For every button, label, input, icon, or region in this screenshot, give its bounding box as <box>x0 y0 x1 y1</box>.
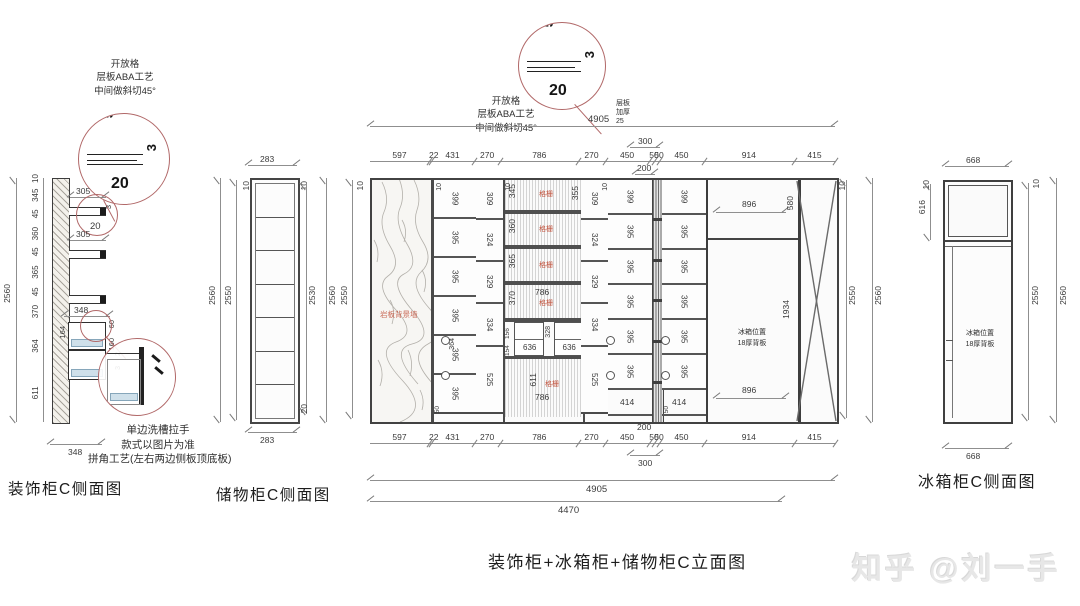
fridge-top-cell: 896 580 <box>708 180 798 240</box>
drawer-width-dim: 636 <box>563 344 576 352</box>
elevation-bottom-dimension-chain: 597224312707862704505050450914415 <box>370 432 835 444</box>
shelf <box>69 295 106 304</box>
fridgeview-right-inner-line <box>1028 183 1029 420</box>
storage-width-dim: 283 <box>260 155 274 164</box>
grille-row-dim: 360 <box>508 219 517 233</box>
knob <box>606 371 615 380</box>
detail-side-dim: 3 <box>583 51 596 58</box>
base-dim: 50 <box>664 406 671 413</box>
storage-left-overall: 2560 <box>208 286 217 305</box>
storage-cell <box>256 352 294 386</box>
fridgeview-right-inner: 2550 <box>1031 286 1040 305</box>
column-270-right-cells: 309324329334525 <box>581 180 608 414</box>
grille-row-3: 365 格栅 <box>505 249 583 285</box>
bottom-300-line <box>630 455 660 456</box>
storage-cell <box>256 318 294 352</box>
top-300-line <box>630 147 660 148</box>
fridgeview-left-upper: 616 <box>918 200 927 214</box>
fridgeview-handle-mark <box>946 360 953 361</box>
shelf-profile <box>527 61 581 72</box>
grille-top-right-dim: 355 <box>571 186 580 200</box>
top-plate-dim: 10 <box>602 183 609 191</box>
corner-top-line <box>107 353 139 354</box>
stone-texture <box>372 180 431 422</box>
base-strip <box>581 412 608 422</box>
fridgeview-width-dim: 668 <box>966 156 980 165</box>
elevation-top-overall: 4905 <box>588 115 609 125</box>
elevation-top-overall-line <box>370 126 835 127</box>
storage-inner <box>255 183 295 419</box>
column-450-left-cells: 399395395395395395 <box>608 180 652 390</box>
fridgeview-right-outer-line <box>1056 178 1057 422</box>
detail-bottom-dim: 20 <box>549 83 567 99</box>
column-450-right-cells: 399395395395395395 <box>662 180 706 390</box>
elevation-detail-circle: 5 3 20 <box>518 22 606 110</box>
thickening-note: 层板加厚25 <box>616 100 642 126</box>
detail-side-dim: 3 <box>145 144 158 151</box>
elevation-bottom-overall-line <box>370 480 835 481</box>
fridgeview-door-edge <box>952 246 953 418</box>
elevation-inner-overall-line <box>370 501 782 502</box>
shelf <box>69 250 106 259</box>
elevation-left-inner-line <box>352 180 353 418</box>
watermark: 知乎 @刘一手 <box>852 544 1061 588</box>
box-height-dim: 164 <box>59 326 67 339</box>
fridge-note: 冰箱位置18厚背板 <box>728 328 776 349</box>
fridge-bottom-width: 896 <box>742 386 756 395</box>
storage-right-overall: 2560 <box>328 286 337 305</box>
decor-note-bottom: 单边洗槽拉手款式以图片为准拼角工艺(左右两边侧板顶底板) <box>88 423 228 467</box>
fridgeview-handle-mark <box>946 340 953 341</box>
fridge-bay: 896 580 1934 冰箱位置18厚背板 896 <box>706 180 801 422</box>
bottom-cell-dim: 414 <box>672 398 686 407</box>
base-strip <box>476 412 503 422</box>
storage-view-title: 储物柜C侧面图 <box>216 483 331 505</box>
storage-left-inner: 2550 <box>224 286 233 305</box>
elevation-left-inner: 2550 <box>340 286 349 305</box>
decor-height-chain: 10345453604536545370364611 <box>28 178 44 422</box>
detail-top-dim: 5 <box>541 22 556 27</box>
shelf-depth-line <box>70 240 106 241</box>
fridgeview-width-dim: 668 <box>966 452 980 461</box>
knob <box>661 336 670 345</box>
knob <box>606 336 615 345</box>
shelf-edge <box>100 251 106 258</box>
grille-column: 345 格栅 355 360 格栅 365 格栅 370 786 格栅 156 … <box>503 180 585 422</box>
knob <box>661 371 670 380</box>
grille-label: 格栅 <box>539 262 553 269</box>
bottom-cell-dim: 414 <box>620 398 634 407</box>
storage-width-dim: 283 <box>260 436 274 445</box>
storage-width-line <box>248 432 297 433</box>
shelf-depth-dim: 305 <box>76 230 90 239</box>
base-dim: 50 <box>435 406 442 413</box>
elevation-inner-overall: 4470 <box>558 506 579 516</box>
detail-top-dim: 5 <box>101 113 116 118</box>
storage-cell <box>256 251 294 285</box>
storage-right-bottom: 20 <box>300 404 309 413</box>
grille-label: 格栅 <box>539 226 553 233</box>
elevation-left-top: 10 <box>356 181 365 190</box>
corner-box <box>107 359 141 405</box>
storage-cell <box>256 218 294 252</box>
storage-left-overall-line <box>220 178 221 422</box>
cabinet-width-dim: 348 <box>68 448 82 457</box>
grille-inner-width: 786 <box>535 288 549 297</box>
drawer-mid-dim: 328 <box>544 322 554 356</box>
drawer-split <box>515 339 543 340</box>
decor-overall-line <box>16 178 17 422</box>
shelf-board <box>110 393 138 401</box>
storage-cell <box>256 184 294 218</box>
drawer-stack-left: 636 <box>514 322 544 356</box>
fridgeview-shelf <box>945 240 1011 247</box>
shelf-edge <box>100 296 106 303</box>
decor-view-title: 装饰柜C侧面图 <box>8 477 123 499</box>
column-431-cells: 399395395395395395 <box>434 180 476 414</box>
knob-gap-dim: 364 <box>449 338 456 350</box>
storage-left-inner-line <box>236 180 237 420</box>
grille-row-2: 360 格栅 <box>505 214 583 249</box>
grille-label: 格栅 <box>545 381 559 388</box>
fridgeview-right-outer: 2560 <box>1059 286 1068 305</box>
fridge-top-width-line <box>716 212 786 213</box>
elevation-title: 装饰柜+冰箱柜+储物柜C立面图 <box>488 548 747 573</box>
drawer-stack-right: 636 <box>554 322 584 356</box>
knob <box>441 371 450 380</box>
column-450-left-bottom: 414 <box>608 390 652 416</box>
detail-bottom-dim: 20 <box>111 176 129 192</box>
hatch-mark <box>151 354 161 363</box>
storage-cabinet <box>250 178 300 424</box>
drawer-band-height: 328 <box>545 326 552 338</box>
drawer-height-dim: 156 <box>505 322 514 339</box>
fridge-height: 1934 <box>782 300 791 319</box>
fridgeview-width-line <box>945 448 1009 449</box>
base-strip <box>608 414 652 422</box>
hatch-mark <box>154 366 164 375</box>
grille-row-1: 345 格栅 355 <box>505 180 583 214</box>
bottom-cell-width: 786 <box>535 393 549 402</box>
fridgeview-title: 冰箱柜C侧面图 <box>918 468 1036 492</box>
end-panel <box>796 180 837 422</box>
fridgeview-616-line <box>930 184 931 240</box>
shelf-profile <box>87 154 143 165</box>
drawer-width-dim: 636 <box>523 344 536 352</box>
bottom-300-dim: 300 <box>638 459 652 468</box>
handle-detail-circle <box>98 338 176 416</box>
grille-row-dim: 365 <box>508 254 517 268</box>
cabinet-drawing-sheet: 开放格层板ABA工艺中间做斜切45° 5 3 20 2560 103454536… <box>0 0 1080 606</box>
decor-detail-circle: 5 3 20 <box>78 113 170 205</box>
grille-label: 格栅 <box>539 191 553 198</box>
storage-right-inner: 2530 <box>308 286 317 305</box>
grille-row-4: 370 786 格栅 <box>505 285 583 322</box>
top-plate-dim: 10 <box>436 183 443 191</box>
fridgeview-top-box <box>948 185 1008 237</box>
bottom-cell-height: 611 <box>529 373 538 387</box>
decor-note-top: 开放格层板ABA工艺中间做斜切45° <box>58 58 192 98</box>
column-270-left-cells: 309324329334525 <box>476 180 503 414</box>
bottom-200-dim: 200 <box>637 423 651 432</box>
top-200-line <box>635 174 655 175</box>
drawer-height-dim: 154 <box>505 339 514 356</box>
base-strip <box>434 412 476 422</box>
mini-side-dim: 3 <box>105 205 113 209</box>
stone-label: 岩板背景墙 <box>380 311 418 319</box>
storage-width-line <box>248 165 297 166</box>
fridge-bottom-width-line <box>716 398 786 399</box>
decor-wall-section <box>52 178 70 424</box>
x-brace <box>796 180 837 422</box>
mini-bottom-dim: 20 <box>90 222 101 232</box>
elevation-top-dimension-chain: 597224312707862704505050450914415 <box>370 150 835 162</box>
elevation-right-outer: 2560 <box>874 286 883 305</box>
drawer-split <box>555 339 583 340</box>
top-300-dim: 300 <box>638 137 652 146</box>
grille-row-dim: 370 <box>508 291 517 305</box>
elevation-body: 岩板背景墙 399395395395395395 309324329334525… <box>370 178 839 424</box>
elevation-bottom-overall: 4905 <box>586 485 607 495</box>
stone-panel: 岩板背景墙 <box>372 180 431 422</box>
drawer-heights: 156 154 <box>505 322 514 356</box>
fridge-top-height: 580 <box>786 196 795 210</box>
fridgeview-width-line <box>945 166 1009 167</box>
fridgeview-right-top: 10 <box>1032 179 1041 188</box>
storage-cell <box>256 285 294 319</box>
fridgeview-note: 冰箱位置18厚背板 <box>959 328 1001 350</box>
fridge-top-width: 896 <box>742 200 756 209</box>
elevation-right-inner: 2550 <box>848 286 857 305</box>
storage-cell <box>256 385 294 418</box>
top-plate-dim: 10 <box>505 183 512 191</box>
fridgeview-cabinet: 冰箱位置18厚背板 <box>943 180 1013 424</box>
decor-overall-height: 2560 <box>3 284 12 303</box>
grille-label: 格栅 <box>539 300 553 307</box>
shelf-depth-dim: 305 <box>76 187 90 196</box>
grille-bottom-cell: 611 格栅 786 <box>505 359 583 417</box>
drawer-band: 156 154 636 328 636 <box>505 322 583 359</box>
